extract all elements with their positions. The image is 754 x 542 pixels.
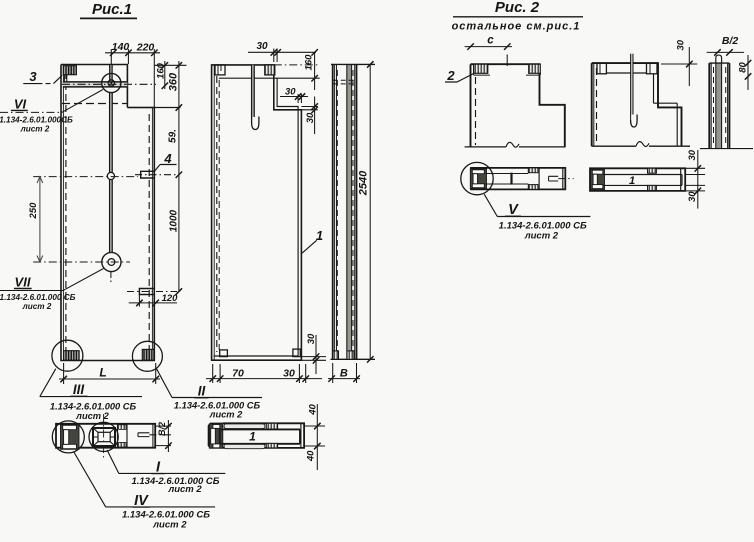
svg-text:30: 30 xyxy=(283,368,295,380)
svg-text:30: 30 xyxy=(285,87,296,98)
svg-text:VII: VII xyxy=(15,275,31,290)
svg-text:120: 120 xyxy=(162,293,179,304)
svg-text:Рис. 2: Рис. 2 xyxy=(495,0,540,16)
svg-text:40: 40 xyxy=(308,404,319,416)
svg-text:1: 1 xyxy=(316,228,323,243)
svg-text:30: 30 xyxy=(687,149,698,160)
svg-text:II: II xyxy=(198,384,206,399)
svg-text:лист 2: лист 2 xyxy=(209,410,243,420)
svg-text:30: 30 xyxy=(305,112,316,123)
svg-text:160: 160 xyxy=(156,62,167,79)
svg-text:VI: VI xyxy=(14,97,27,112)
svg-text:80: 80 xyxy=(738,62,749,73)
svg-text:лист 2: лист 2 xyxy=(20,125,50,134)
svg-text:220: 220 xyxy=(136,42,155,54)
svg-text:140: 140 xyxy=(112,41,130,53)
svg-text:1.134-2.6.01.000 СБ: 1.134-2.6.01.000 СБ xyxy=(50,402,137,412)
svg-text:лист 2: лист 2 xyxy=(524,231,559,242)
svg-text:1: 1 xyxy=(249,430,256,444)
svg-text:360: 360 xyxy=(168,72,180,91)
svg-text:1: 1 xyxy=(629,175,635,187)
svg-text:2: 2 xyxy=(446,68,455,83)
svg-text:1.134-2.6.01.000 СБ: 1.134-2.6.01.000 СБ xyxy=(0,293,76,302)
svg-text:2540: 2540 xyxy=(358,170,370,196)
svg-text:с: с xyxy=(487,35,494,47)
svg-text:В: В xyxy=(340,368,348,380)
svg-text:160: 160 xyxy=(304,54,315,71)
svg-text:В/2: В/2 xyxy=(722,35,739,47)
svg-text:40: 40 xyxy=(305,450,316,462)
svg-text:лист 2: лист 2 xyxy=(167,484,202,495)
svg-text:4: 4 xyxy=(163,151,172,166)
svg-text:лист 2: лист 2 xyxy=(22,302,52,311)
svg-text:30: 30 xyxy=(676,39,687,50)
svg-text:30: 30 xyxy=(687,191,698,202)
svg-text:лист 2: лист 2 xyxy=(152,520,187,531)
svg-text:остальное см.рис.1: остальное см.рис.1 xyxy=(452,21,581,33)
svg-text:1.134-2.6.01.000СБ: 1.134-2.6.01.000СБ xyxy=(0,116,73,125)
svg-text:59.: 59. xyxy=(168,129,179,143)
svg-text:3: 3 xyxy=(29,69,37,84)
svg-text:30: 30 xyxy=(306,333,317,344)
svg-text:1000: 1000 xyxy=(169,209,180,232)
svg-text:III: III xyxy=(73,382,85,397)
svg-text:Рис.1: Рис.1 xyxy=(92,1,132,18)
svg-text:лист 2: лист 2 xyxy=(75,411,109,421)
svg-text:В/2: В/2 xyxy=(157,422,167,436)
svg-text:L: L xyxy=(99,366,106,380)
svg-text:250: 250 xyxy=(28,202,39,220)
svg-text:70: 70 xyxy=(232,368,244,380)
svg-text:30: 30 xyxy=(256,41,268,52)
